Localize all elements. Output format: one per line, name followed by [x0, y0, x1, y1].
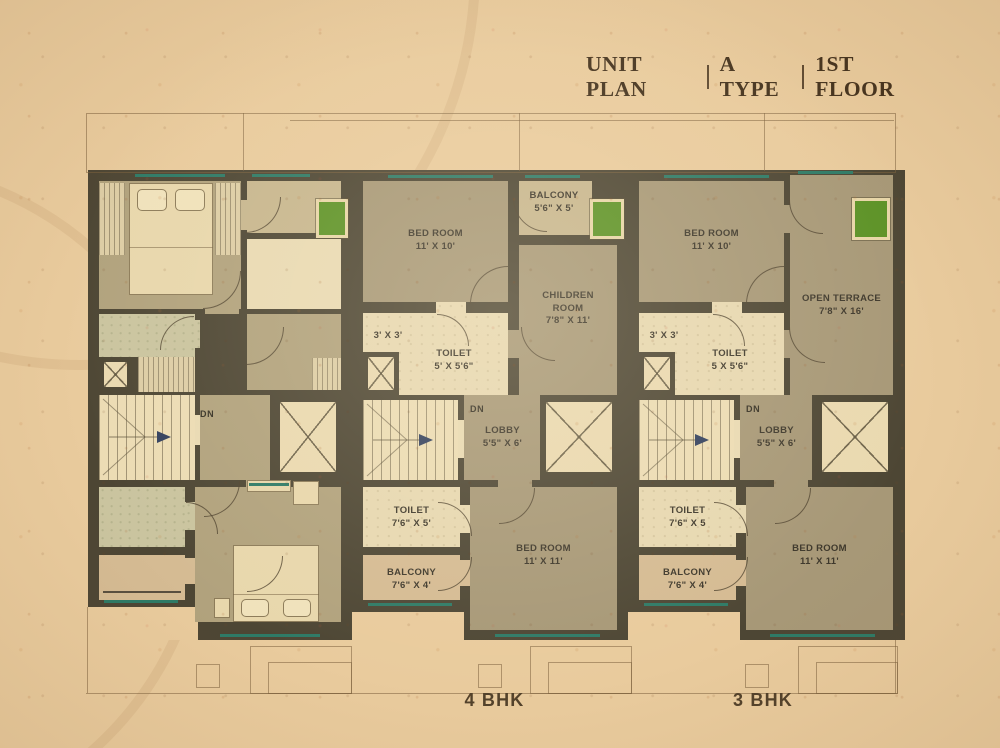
room-label-lobby: LOBBY 5'5" X 6' [729, 425, 824, 450]
room-label-toilet-bottom: TOILET 7'6" X 5 [639, 505, 736, 530]
wardrobe [99, 183, 125, 255]
room-name: TOILET [680, 348, 780, 361]
room-dims: 5'5" X 6' [729, 438, 824, 451]
planter [852, 198, 890, 240]
unit-type-label-4bhk: 4 BHK [452, 690, 537, 711]
room-dims: 7'8" X 16' [790, 306, 893, 319]
counter [293, 481, 319, 505]
bed-sheet-line [129, 247, 213, 248]
stairs-dn-label: DN [200, 409, 214, 419]
room-dims: 11' X 10' [639, 241, 784, 254]
plan-step-notch [628, 612, 740, 640]
room-label-toilet-top: TOILET 5 X 5'6" [680, 348, 780, 373]
left-passage [247, 239, 341, 309]
bed-sheet-line [233, 594, 319, 595]
room-dims: 7'6" X 5 [639, 518, 736, 531]
room-dims: 5'6" X 5' [512, 203, 596, 216]
room-name: TOILET [639, 505, 736, 518]
door-opening [205, 309, 239, 314]
room-label-bedroom-bottom: BED ROOM 11' X 11' [470, 543, 617, 568]
door-opening [185, 558, 195, 584]
left-toilet-bottom [99, 487, 185, 547]
door-opening [436, 302, 466, 313]
window-line [135, 174, 225, 177]
wardrobe [215, 183, 241, 255]
pillow [175, 189, 205, 211]
room-name: LOBBY [455, 425, 550, 438]
pillow [283, 599, 311, 617]
room-label-bedroom-top: BED ROOM 11' X 10' [639, 228, 784, 253]
room-label-children-room: CHILDREN ROOM 7'8" X 11' [519, 290, 617, 328]
room-label-store: 3' X 3' [358, 330, 418, 343]
window-line [220, 634, 320, 637]
room-name: OPEN TERRACE [790, 293, 893, 306]
floor-plan-page: UNIT PLAN A TYPE 1ST FLOOR [0, 0, 1000, 748]
room-label-balcony-top: BALCONY 5'6" X 5' [512, 190, 596, 215]
planter [316, 199, 348, 238]
stairs-direction-arrow [639, 400, 734, 480]
duct-shaft [817, 397, 893, 477]
door-opening [498, 480, 532, 487]
wardrobe [138, 357, 195, 392]
duct-shaft [363, 352, 399, 395]
window-line [798, 171, 853, 174]
pillow [137, 189, 167, 211]
duct-shaft [541, 397, 617, 477]
door-opening [195, 415, 200, 445]
outline-line [87, 607, 88, 693]
left-hall [200, 395, 270, 480]
outline-line [519, 113, 520, 171]
room-name: TOILET [404, 348, 504, 361]
outline-line [243, 113, 244, 171]
window-line [104, 600, 178, 603]
stairs-direction-arrow [99, 395, 195, 480]
title-part-1st-floor: 1ST FLOOR [815, 52, 926, 102]
room-dims: 11' X 10' [363, 241, 508, 254]
room-name: BED ROOM [363, 228, 508, 241]
room-dims: 11' X 11' [470, 556, 617, 569]
room-name: BED ROOM [639, 228, 784, 241]
door-opening [774, 480, 808, 487]
stairs-dn-label: DN [470, 404, 484, 414]
porch-step-outline [268, 662, 352, 694]
duct-shaft [275, 397, 341, 477]
room-name: BED ROOM [746, 543, 893, 556]
outline-line [764, 113, 765, 171]
outline-line [290, 120, 894, 121]
porch-step-outline [478, 664, 502, 688]
room-name: ROOM [519, 303, 617, 316]
room-label-lobby: LOBBY 5'5" X 6' [455, 425, 550, 450]
window-line [664, 175, 769, 178]
stairs-dn-label: DN [746, 404, 760, 414]
duct-shaft [99, 357, 132, 392]
stairs-direction-arrow [363, 400, 458, 480]
room-label-store: 3' X 3' [634, 330, 694, 343]
pillow [241, 599, 269, 617]
title-separator [802, 65, 804, 89]
unit-type-label-3bhk: 3 BHK [720, 690, 806, 711]
room-dims: 3' X 3' [634, 330, 694, 343]
window-line [495, 634, 600, 637]
room-name: BALCONY [639, 567, 736, 580]
room-label-open-terrace: OPEN TERRACE 7'8" X 16' [790, 293, 893, 318]
left-balcony-bottom [99, 555, 185, 600]
room-dims: 11' X 11' [746, 556, 893, 569]
door-opening [508, 330, 519, 358]
terrace-outline-top [86, 113, 896, 173]
room-dims: 5' X 5'6" [404, 361, 504, 374]
room-label-balcony-bottom: BALCONY 7'6" X 4' [363, 567, 460, 592]
title-part-a-type: A TYPE [720, 52, 792, 102]
porch-step-outline [745, 664, 769, 688]
room-dims: 7'6" X 4' [639, 580, 736, 593]
porch-step-outline [816, 662, 898, 694]
room-name: CHILDREN [519, 290, 617, 303]
porch-step-outline [548, 662, 632, 694]
room-dims: 7'6" X 4' [363, 580, 460, 593]
room-name: TOILET [363, 505, 460, 518]
room-dims: 7'6" X 5' [363, 518, 460, 531]
room-name: BALCONY [363, 567, 460, 580]
room-label-toilet-top: TOILET 5' X 5'6" [404, 348, 504, 373]
room-dims: 7'8" X 11' [519, 315, 617, 328]
dresser [247, 480, 291, 492]
window-line [388, 175, 493, 178]
plan-step-notch [352, 612, 464, 640]
page-title: UNIT PLAN A TYPE 1ST FLOOR [586, 60, 926, 94]
window-line [770, 634, 875, 637]
room-dims: 5 X 5'6" [680, 361, 780, 374]
window-line [368, 603, 452, 606]
room-label-bedroom-top: BED ROOM 11' X 10' [363, 228, 508, 253]
window-line [525, 175, 580, 178]
window-line [252, 174, 310, 177]
room-name: BALCONY [512, 190, 596, 203]
room-label-toilet-bottom: TOILET 7'6" X 5' [363, 505, 460, 530]
room-dims: 3' X 3' [358, 330, 418, 343]
door-opening [712, 302, 742, 313]
title-separator [707, 65, 709, 89]
wardrobe [312, 358, 341, 390]
room-dims: 5'5" X 6' [455, 438, 550, 451]
balcony-rail-line [103, 591, 181, 593]
title-part-unit-plan: UNIT PLAN [586, 52, 696, 102]
room-name: LOBBY [729, 425, 824, 438]
room-label-balcony-bottom: BALCONY 7'6" X 4' [639, 567, 736, 592]
door-opening [195, 320, 200, 348]
door-opening [784, 205, 790, 233]
room-label-bedroom-bottom: BED ROOM 11' X 11' [746, 543, 893, 568]
porch-step-outline [196, 664, 220, 688]
plan-step-notch [88, 607, 198, 640]
room-name: BED ROOM [470, 543, 617, 556]
duct-shaft [639, 352, 675, 395]
dresser-top-line [249, 483, 289, 486]
nightstand [214, 598, 230, 618]
window-line [644, 603, 728, 606]
